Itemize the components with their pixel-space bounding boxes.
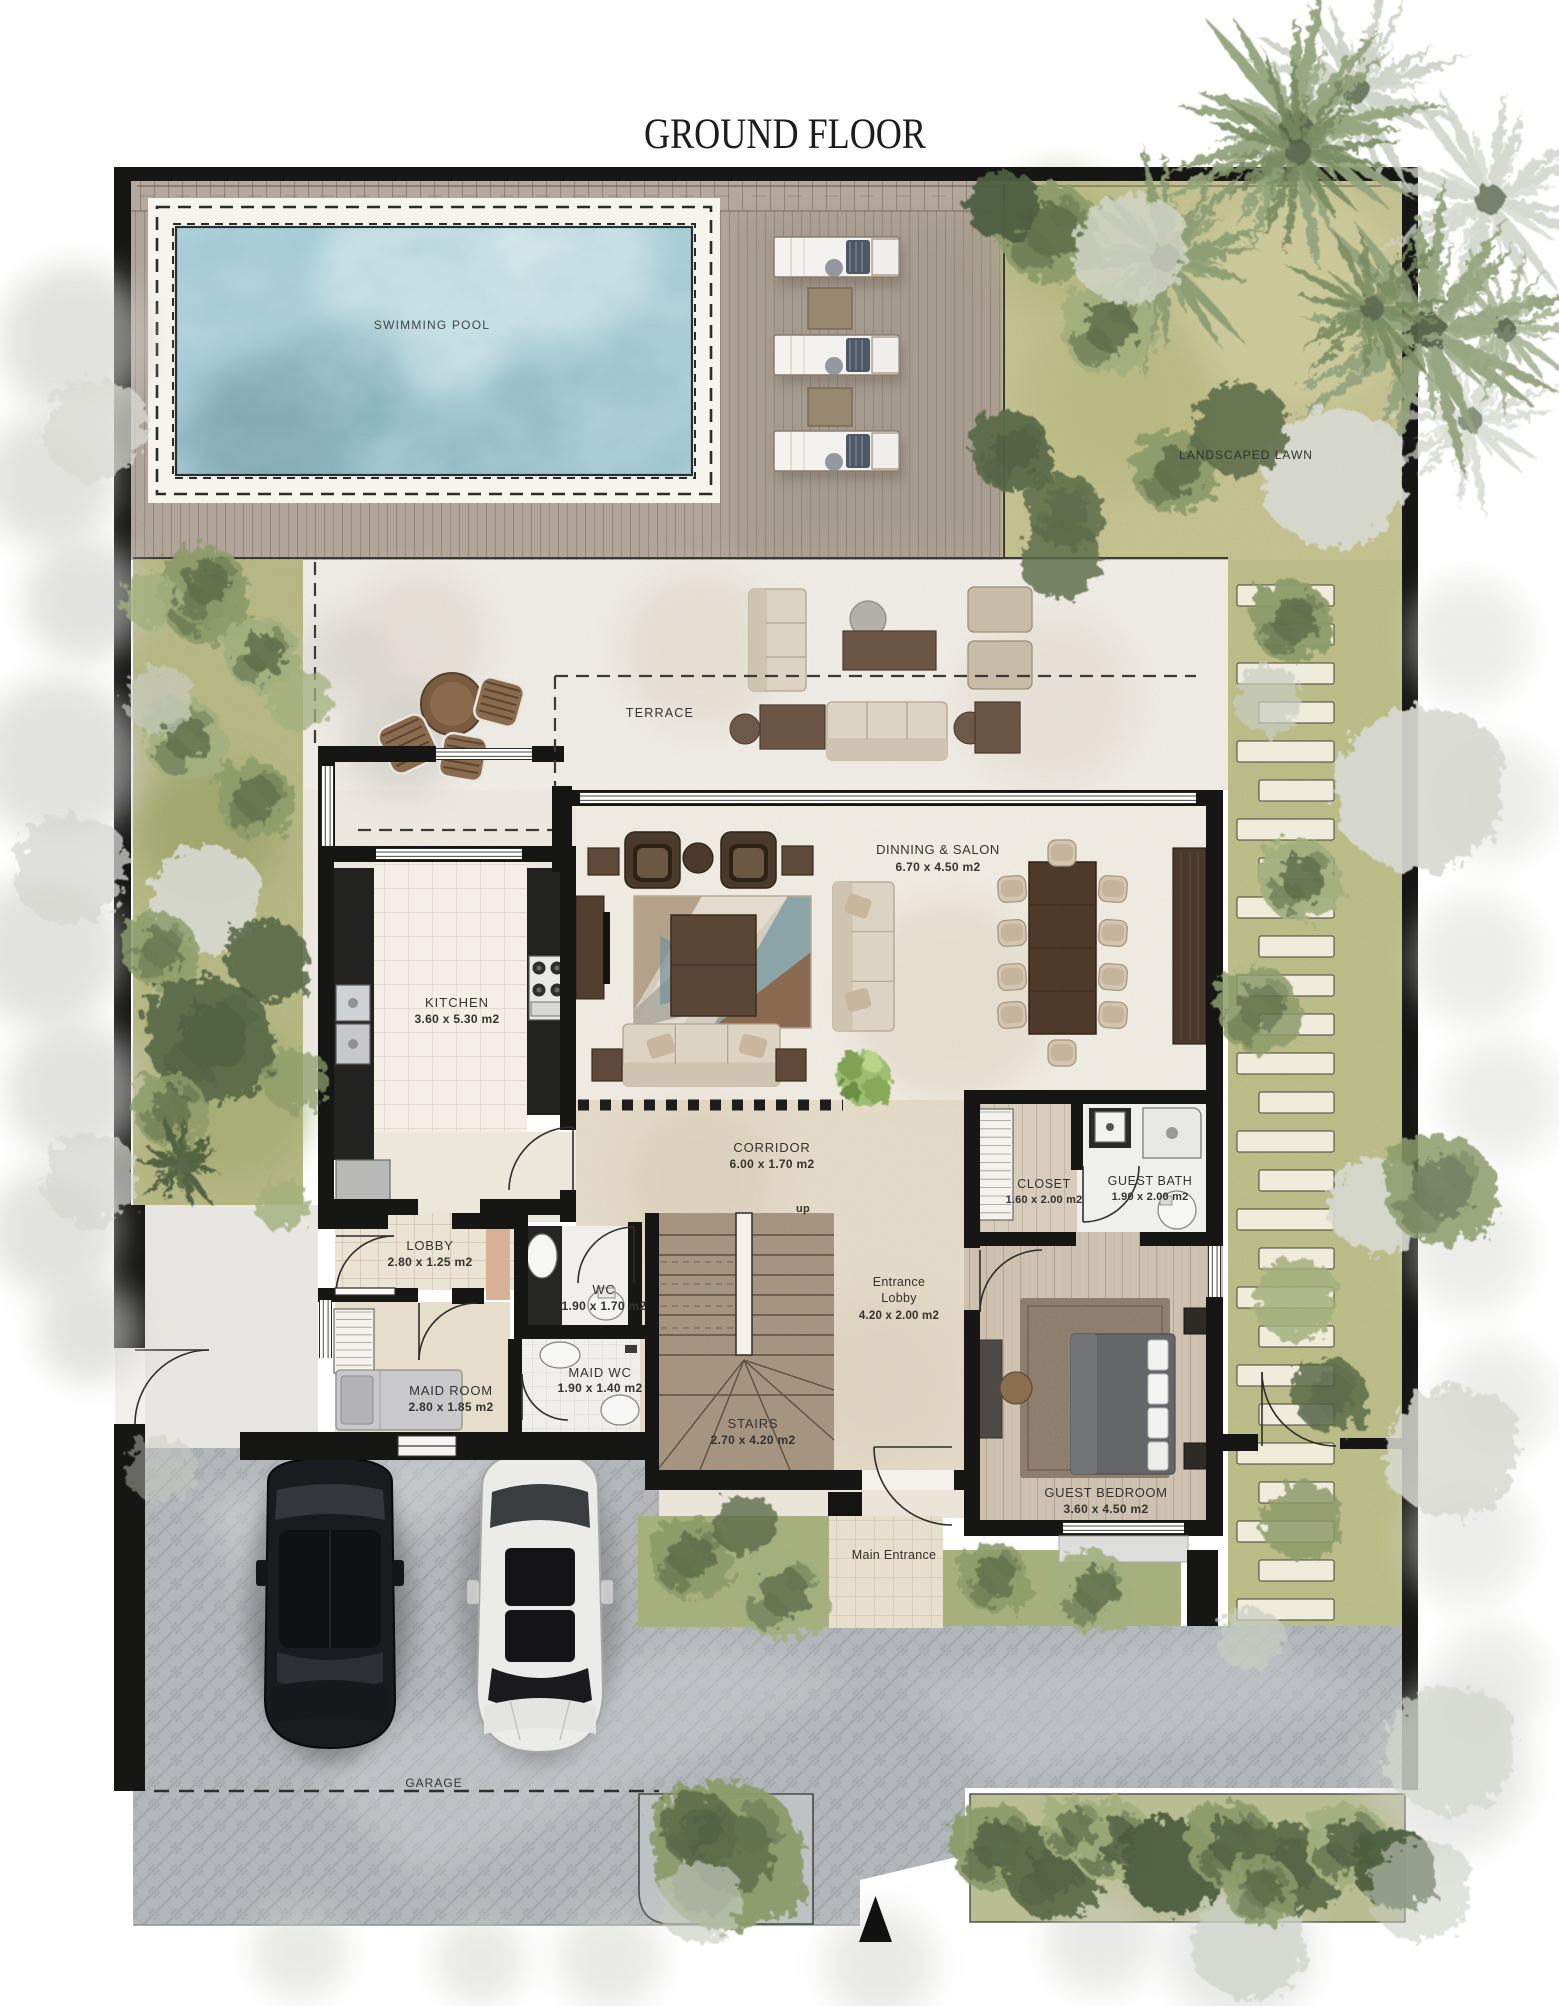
svg-text:LANDSCAPED LAWN: LANDSCAPED LAWN xyxy=(1179,448,1313,462)
svg-text:STAIRS: STAIRS xyxy=(728,1416,779,1431)
svg-text:6.70 x 4.50 m2: 6.70 x 4.50 m2 xyxy=(896,860,981,874)
svg-text:Main Entrance: Main Entrance xyxy=(852,1548,937,1562)
svg-text:SWIMMING POOL: SWIMMING POOL xyxy=(374,318,490,332)
svg-text:2.80 x 1.25 m2: 2.80 x 1.25 m2 xyxy=(388,1255,473,1269)
svg-text:MAID WC: MAID WC xyxy=(568,1365,631,1380)
svg-text:TERRACE: TERRACE xyxy=(626,706,694,720)
svg-text:2.80 x 1.85 m2: 2.80 x 1.85 m2 xyxy=(409,1400,494,1414)
svg-text:GUEST BATH: GUEST BATH xyxy=(1108,1174,1193,1188)
svg-text:GARAGE: GARAGE xyxy=(405,1776,462,1790)
svg-text:GROUND FLOOR: GROUND FLOOR xyxy=(644,111,926,158)
svg-text:1.60 x 2.00 m2: 1.60 x 2.00 m2 xyxy=(1006,1194,1083,1206)
svg-text:WC: WC xyxy=(592,1282,615,1297)
svg-text:LOBBY: LOBBY xyxy=(406,1238,453,1253)
svg-text:1.90 x 2.00 m2: 1.90 x 2.00 m2 xyxy=(1112,1191,1189,1203)
svg-text:Lobby: Lobby xyxy=(881,1291,917,1305)
svg-text:MAID ROOM: MAID ROOM xyxy=(409,1383,493,1398)
svg-text:up: up xyxy=(796,1203,810,1215)
svg-text:CLOSET: CLOSET xyxy=(1017,1177,1071,1191)
svg-text:1.90 x 1.40 m2: 1.90 x 1.40 m2 xyxy=(558,1381,643,1395)
svg-text:CORRIDOR: CORRIDOR xyxy=(733,1140,810,1155)
svg-text:6.00 x 1.70 m2: 6.00 x 1.70 m2 xyxy=(730,1157,815,1171)
svg-text:3.60 x 4.50 m2: 3.60 x 4.50 m2 xyxy=(1064,1502,1149,1516)
svg-text:2.70 x 4.20 m2: 2.70 x 4.20 m2 xyxy=(711,1433,796,1447)
svg-text:Entrance: Entrance xyxy=(873,1275,925,1289)
svg-text:KITCHEN: KITCHEN xyxy=(425,995,489,1010)
svg-text:1.90 x 1.70 m2: 1.90 x 1.70 m2 xyxy=(562,1299,647,1313)
svg-text:4.20 x 2.00 m2: 4.20 x 2.00 m2 xyxy=(859,1310,939,1322)
svg-text:DINNING & SALON: DINNING & SALON xyxy=(876,842,1000,857)
svg-text:3.60 x 5.30 m2: 3.60 x 5.30 m2 xyxy=(415,1012,500,1026)
svg-text:GUEST BEDROOM: GUEST BEDROOM xyxy=(1044,1485,1167,1500)
